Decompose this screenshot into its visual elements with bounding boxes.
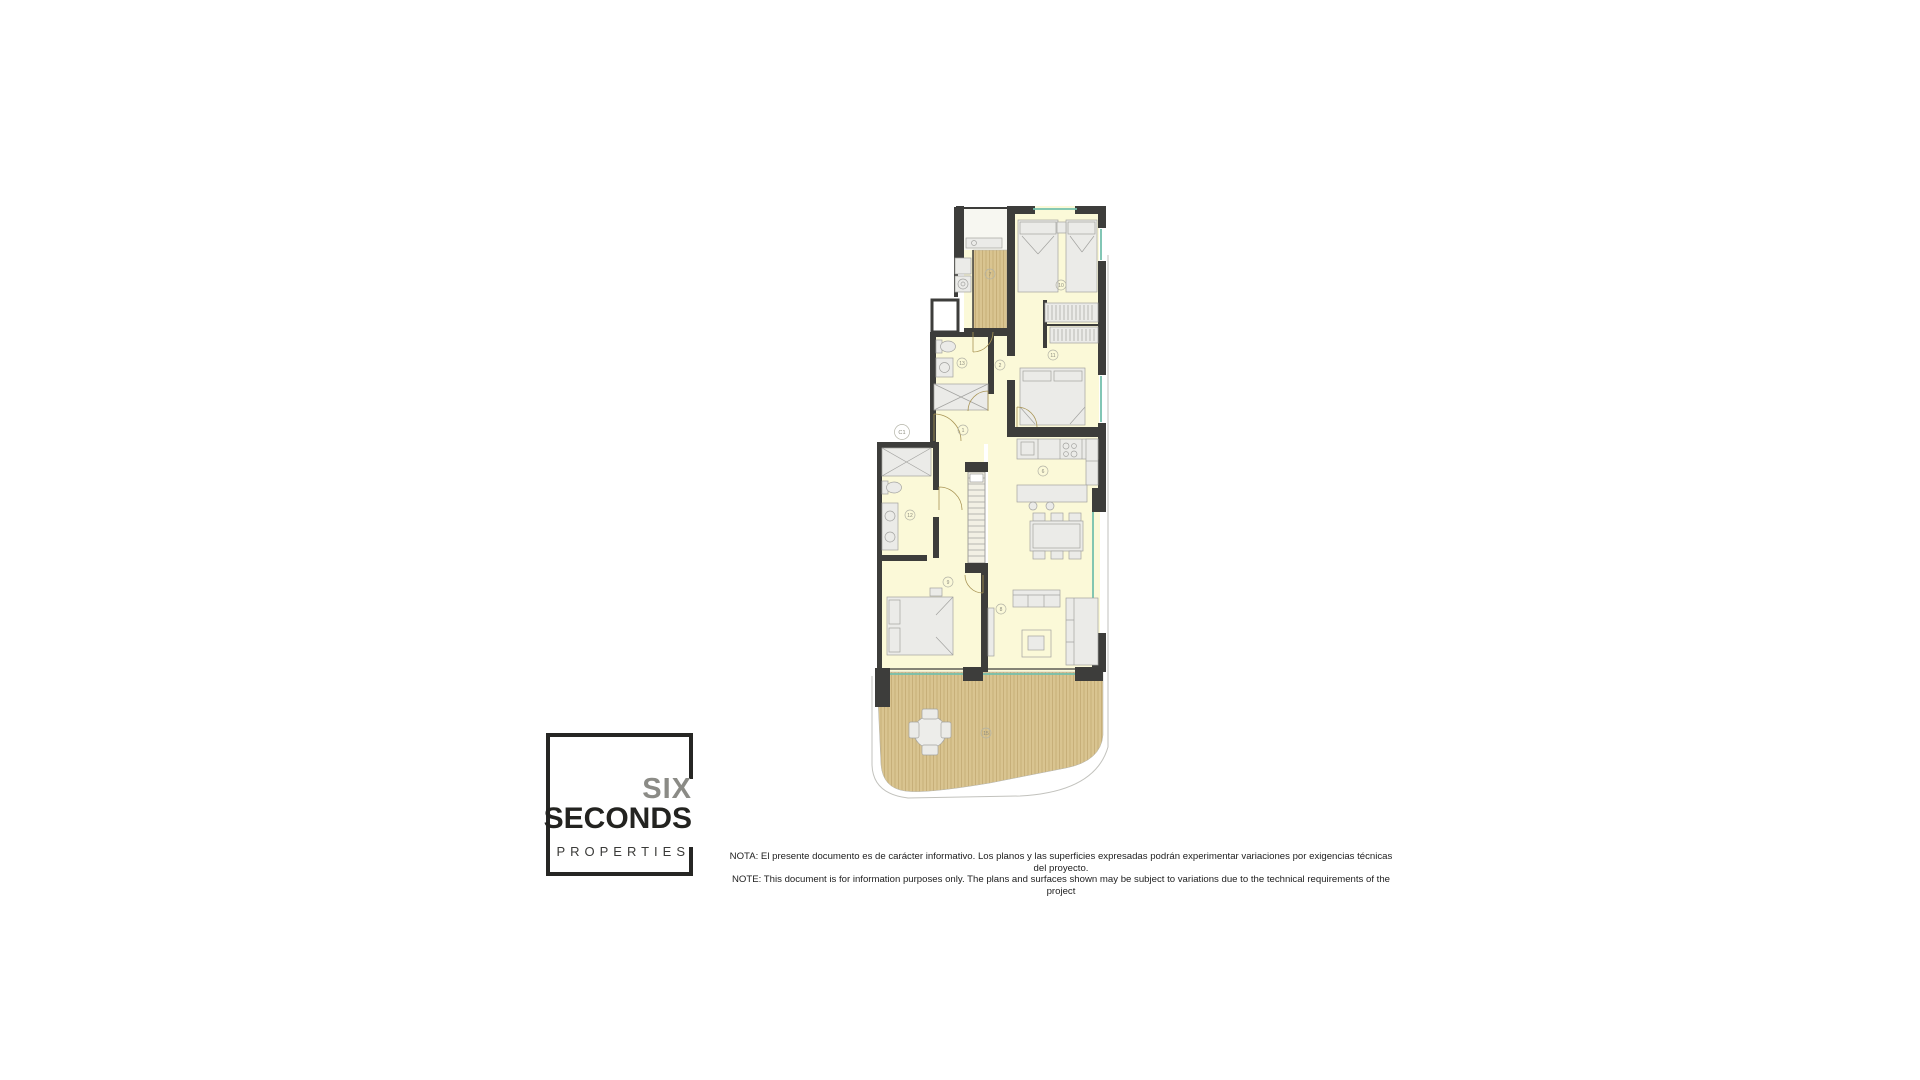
floor-plan-svg: C1 7 10 11 13 2 1 12 6 9: [870, 195, 1115, 810]
label-bathroom-top: 13: [959, 361, 965, 367]
unit-label: C1: [898, 430, 905, 436]
bedroom-middle-furniture: [1020, 368, 1085, 425]
six-seconds-logo: SIX SECONDS PROPERTIES: [546, 733, 693, 876]
label-kitchen: 6: [1042, 469, 1045, 475]
logo-word-seconds: SECONDS: [544, 804, 692, 834]
brochure-page: C1 7 10 11 13 2 1 12 6 9: [0, 0, 1920, 1080]
disclaimer-line-es: NOTA: El presente documento es de caráct…: [722, 851, 1400, 874]
disclaimer-note: NOTA: El presente documento es de caráct…: [722, 851, 1400, 897]
label-hall: 1: [962, 428, 965, 434]
label-bedroom-top: 10: [1058, 283, 1064, 289]
label-living-room: 8: [1000, 607, 1003, 613]
disclaimer-line-en: NOTE: This document is for information p…: [722, 874, 1400, 897]
floor-plan: C1 7 10 11 13 2 1 12 6 9: [870, 195, 1115, 810]
bedroom-main-furniture: [887, 588, 953, 655]
hatched-closet: [965, 462, 988, 573]
label-corridor: 2: [999, 363, 1002, 369]
label-terrace: 15: [983, 731, 989, 737]
utility-terrace: [973, 250, 1007, 332]
label-bathroom-ensuite: 12: [907, 513, 913, 519]
label-utility-terrace: 7: [989, 272, 992, 278]
label-bedroom-middle: 11: [1050, 353, 1055, 359]
logo-word-properties: PROPERTIES: [556, 845, 690, 858]
logo-word-six: SIX: [642, 775, 692, 804]
dining-furniture: [1030, 513, 1083, 559]
label-bedroom-main: 9: [947, 580, 950, 586]
